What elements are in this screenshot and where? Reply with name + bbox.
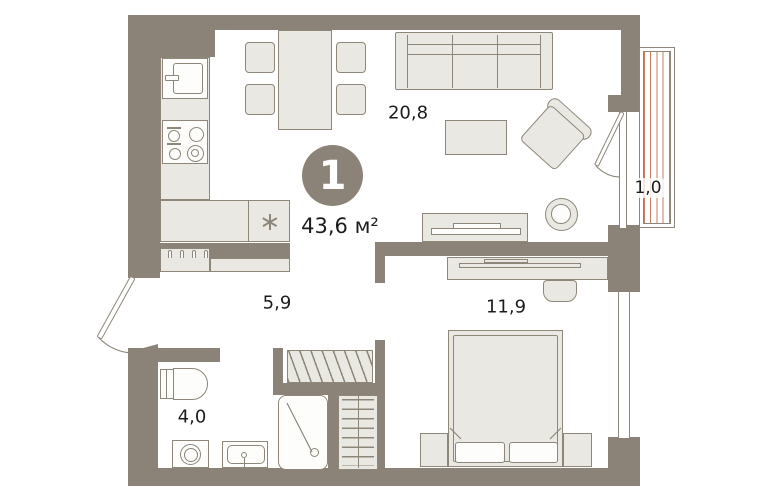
wall-right-foot	[608, 95, 640, 112]
burner-bottom-left	[169, 148, 181, 160]
wall-left-upper	[128, 30, 160, 278]
stove	[162, 120, 208, 164]
rug	[445, 120, 507, 155]
kitchen-sink-unit	[162, 58, 208, 99]
balcony-door-swing-arc	[596, 166, 620, 177]
armchair	[518, 97, 592, 172]
dining-chair	[245, 84, 275, 115]
wall-bathroom-top	[158, 348, 220, 362]
toilet-bowl	[173, 368, 208, 400]
burner-bar2	[167, 143, 181, 145]
balcony	[639, 47, 675, 228]
wall-closet-vertical	[328, 395, 338, 470]
dining-chair	[245, 42, 275, 73]
coat-hook	[204, 250, 208, 258]
bathroom-sink	[222, 441, 268, 468]
nightstand-right	[563, 433, 592, 467]
bedroom-window	[618, 292, 630, 438]
tv-stand	[422, 213, 528, 242]
burner-bar	[167, 127, 181, 129]
bedroom-area-label: 11,9	[486, 297, 526, 318]
shower-drain	[310, 448, 319, 457]
sofa	[395, 32, 553, 90]
desk-chair	[543, 280, 577, 302]
burner-top-right	[189, 127, 204, 142]
coat-hook	[168, 250, 172, 258]
wall-top	[128, 15, 640, 30]
balcony-area-label: 1,0	[632, 178, 663, 198]
bathroom-area-label: 4,0	[178, 407, 207, 428]
nightstand-left	[420, 433, 448, 467]
wall-right-upper-block	[608, 225, 640, 292]
total-area-label: 43,6 м²	[301, 214, 379, 238]
washing-machine	[172, 440, 209, 468]
burner-top-left	[168, 130, 180, 142]
burner-bottom-right	[187, 145, 204, 162]
kitchen-faucet	[165, 75, 179, 81]
shower	[278, 395, 328, 470]
hallway-area-label: 5,9	[263, 293, 292, 314]
pillow	[509, 442, 558, 463]
dining-chair	[336, 42, 366, 73]
coat-hook	[192, 250, 196, 258]
dishwasher-asterisk-icon	[262, 214, 278, 230]
tv	[431, 228, 521, 235]
wall-bedroom-left-top	[375, 242, 385, 283]
wall-bottom	[128, 468, 640, 486]
dining-table	[278, 30, 332, 130]
dishwasher	[248, 200, 290, 242]
floor-plan: 1 43,6 м² 20,8 1,0 5,9 11,9 4,0	[0, 0, 770, 500]
dining-chair	[336, 84, 366, 115]
pillow	[455, 442, 505, 463]
wall-entrance-stub	[128, 344, 158, 362]
bed	[448, 330, 563, 467]
balcony-window	[619, 112, 627, 228]
room-count-badge: 1	[302, 145, 363, 206]
living-area-label: 20,8	[388, 103, 428, 124]
shelving-unit	[338, 395, 378, 470]
wall-living-bedroom	[375, 242, 630, 256]
plant	[545, 198, 578, 231]
wall-right-lower-block	[608, 437, 640, 468]
coat-hook	[180, 250, 184, 258]
hallway-bench	[210, 258, 290, 272]
desk	[447, 257, 608, 280]
coat-rack	[160, 248, 210, 272]
balcony-floor-hatch	[643, 51, 671, 224]
wall-bathroom-left	[128, 348, 158, 468]
wall-closet-horizontal	[280, 383, 383, 395]
wardrobe	[287, 350, 373, 383]
toilet-tank	[160, 369, 174, 399]
burner-inner-ring	[191, 149, 199, 157]
entrance-door-leaf	[96, 276, 135, 340]
